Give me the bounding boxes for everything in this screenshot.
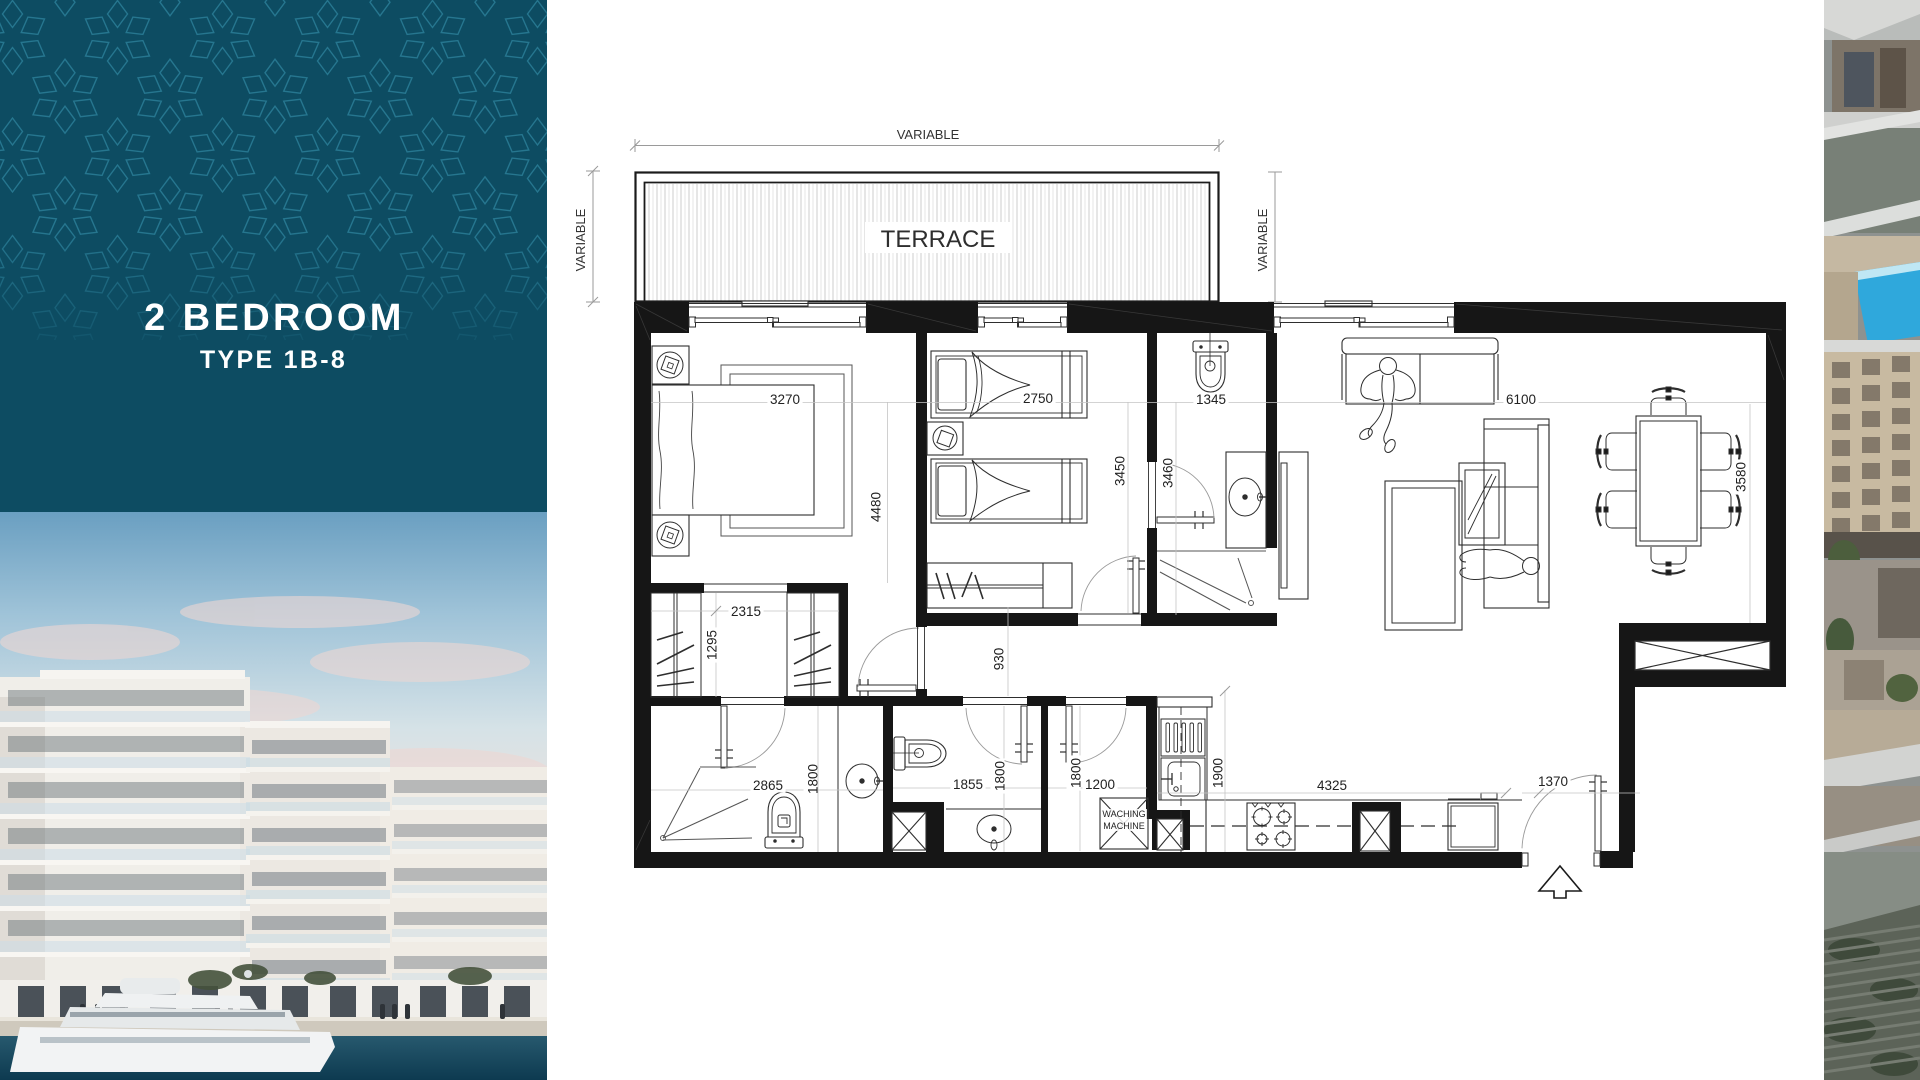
svg-text:2315: 2315: [731, 604, 761, 619]
svg-text:1800: 1800: [1069, 758, 1084, 788]
svg-text:VARIABLE: VARIABLE: [897, 127, 960, 142]
svg-text:1855: 1855: [953, 777, 983, 792]
svg-text:1800: 1800: [993, 761, 1008, 791]
svg-text:1345: 1345: [1196, 392, 1226, 407]
svg-text:1900: 1900: [1211, 758, 1226, 788]
svg-text:930: 930: [992, 648, 1007, 671]
svg-text:6100: 6100: [1506, 392, 1536, 407]
svg-text:1800: 1800: [806, 764, 821, 794]
svg-text:VARIABLE: VARIABLE: [573, 208, 588, 271]
svg-text:3460: 3460: [1161, 458, 1176, 488]
svg-text:3450: 3450: [1113, 456, 1128, 486]
svg-text:TERRACE: TERRACE: [881, 226, 996, 253]
svg-text:MACHINE: MACHINE: [1103, 821, 1145, 831]
svg-text:1200: 1200: [1085, 777, 1115, 792]
svg-text:2750: 2750: [1023, 391, 1053, 406]
svg-text:VARIABLE: VARIABLE: [1255, 208, 1270, 271]
svg-text:3270: 3270: [770, 392, 800, 407]
svg-text:4325: 4325: [1317, 778, 1347, 793]
svg-text:2865: 2865: [753, 778, 783, 793]
svg-text:4480: 4480: [869, 492, 884, 522]
svg-text:1295: 1295: [705, 630, 720, 660]
svg-text:WACHING: WACHING: [1102, 809, 1145, 819]
svg-text:1370: 1370: [1538, 774, 1568, 789]
svg-text:3580: 3580: [1734, 462, 1749, 492]
